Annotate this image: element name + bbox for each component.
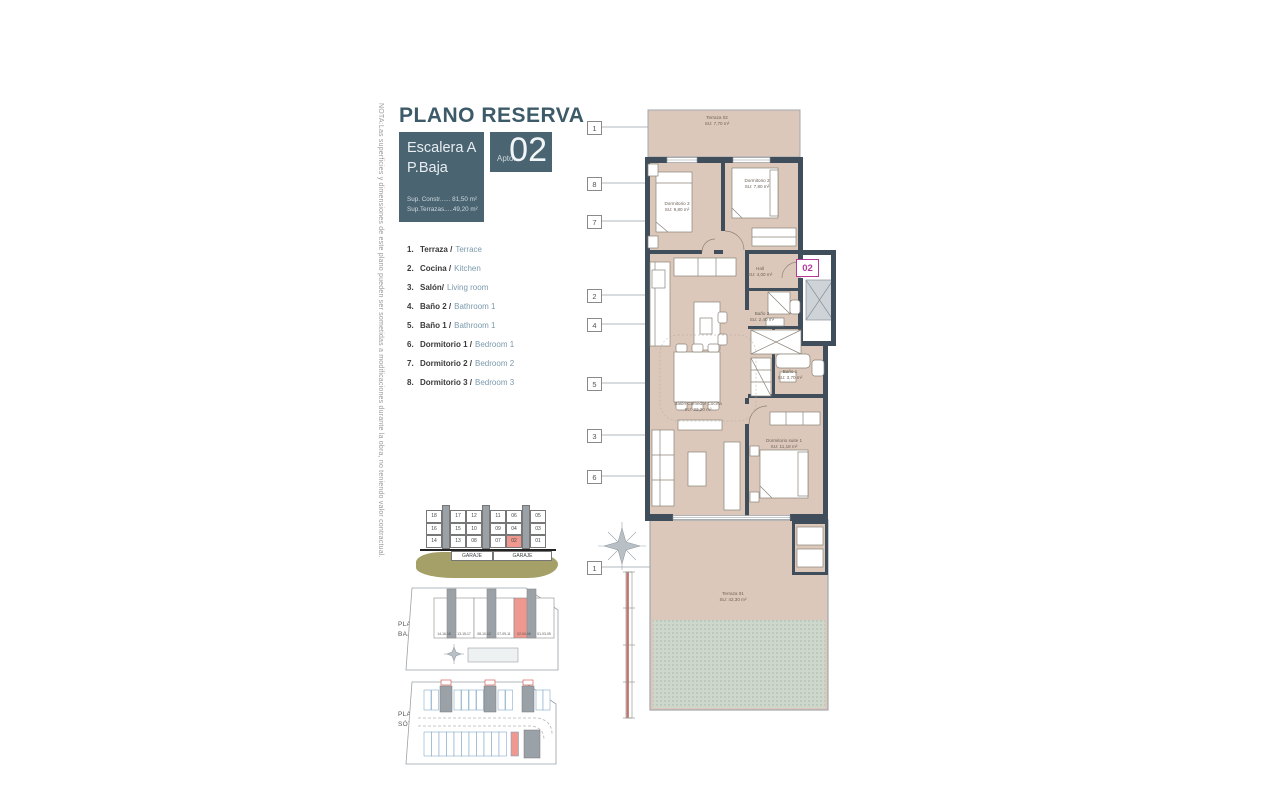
legend-item: 6.Dormitorio 1 /Bedroom 1 — [407, 341, 514, 349]
callout-7-dormitorio2: 7 — [587, 215, 602, 229]
legend-item: 3.Salón/Living room — [407, 284, 514, 292]
callout-6-dormitorio1: 6 — [587, 470, 602, 484]
callout-2-cocina: 2 — [587, 289, 602, 303]
compass-rose-icon — [598, 522, 646, 570]
room-label-bano1: Baño 1SU: 3,70 m² — [778, 369, 803, 381]
legend-item: 7.Dormitorio 2 /Bedroom 2 — [407, 360, 514, 368]
room-label-dormitorio2: Dormitorio 2SU: 7,80 m² — [744, 178, 769, 190]
building-elevation-scheme: 181614 171513 121008 110907 060402 05030… — [416, 502, 558, 580]
stair-core — [522, 505, 530, 549]
legend-item: 2.Cocina /Kitchen — [407, 265, 514, 273]
svg-text:02-04-06: 02-04-06 — [517, 632, 531, 636]
room-label-salon: Salón Comedor CocinaSU: 22,20 m² — [674, 401, 722, 413]
legend-item: 4.Baño 2 /Bathroom 1 — [407, 303, 514, 311]
room-label-bano2: Baño 2SU: 2,40 m² — [750, 311, 775, 323]
baja-blocks — [434, 589, 554, 638]
elevation-grid: 181614 171513 121008 110907 060402 05030… — [426, 505, 546, 549]
scale-bar — [623, 572, 635, 718]
sup-terrazas: Sup.Terrazas.....49,20 m² — [407, 205, 484, 214]
svg-text:08-10-12: 08-10-12 — [477, 632, 491, 636]
callout-3-salon: 3 — [587, 429, 602, 443]
svg-text:01-03-05: 01-03-05 — [537, 632, 551, 636]
svg-text:07-09-11: 07-09-11 — [497, 632, 510, 636]
apartment-02-badge: 02 — [796, 259, 819, 277]
garaje-label: GARAJE — [451, 551, 493, 561]
plano-reserva-document: NOTA:Las superficies y dimensiones de es… — [0, 0, 1280, 800]
callout-1-terraza-inferior: 1 — [587, 561, 602, 575]
planta-baja-siteplan: 14-16-18 13-15-17 08-10-12 07-09-11 02-0… — [396, 584, 562, 674]
callout-4-bano2: 4 — [587, 318, 602, 332]
legend-item: 1.Terraza /Terrace — [407, 246, 514, 254]
svg-text:14-16-18: 14-16-18 — [437, 632, 451, 636]
apto-number: 02 — [509, 131, 547, 170]
staircase-info-box: Escalera A P.Baja Sup. Constr...... 81,5… — [399, 132, 484, 222]
callout-8-dormitorio3: 8 — [587, 177, 602, 191]
garaje-label: GARAJE — [493, 551, 552, 561]
pool-shape — [468, 648, 518, 662]
callout-1-terraza: 1 — [587, 121, 602, 135]
sup-constr: Sup. Constr...... 81,50 m² — [407, 195, 484, 204]
room-label-terraza01: Terraza 01SU: 42,30 m² — [719, 591, 746, 603]
escalera-label: Escalera A — [407, 139, 484, 159]
room-label-suite: Dormitorio suite 1SU: 11,18 m² — [766, 438, 802, 450]
planta-sotano-siteplan — [396, 676, 562, 768]
room-legend: 1.Terraza /Terrace 2.Cocina /Kitchen 3.S… — [407, 246, 514, 398]
stair-core — [442, 505, 450, 549]
highlighted-unit-cell: 02 — [506, 535, 522, 548]
planta-label: P.Baja — [407, 159, 484, 179]
legend-item: 5.Baño 1 /Bathroom 1 — [407, 322, 514, 330]
stair-core — [482, 505, 490, 549]
callout-5-bano1: 5 — [587, 377, 602, 391]
svg-text:13-15-17: 13-15-17 — [457, 632, 471, 636]
page-title: PLANO RESERVA — [399, 104, 584, 128]
legend-item: 8.Dormitorio 3 /Bedroom 3 — [407, 379, 514, 387]
apartment-number-box: Apto. 02 — [490, 132, 552, 172]
room-label-dormitorio3: Dormitorio 3SU: 9,80 m² — [664, 201, 689, 213]
highlighted-parking-cell — [511, 732, 519, 756]
room-label-terraza02: Terraza 02SU: 7,70 m² — [705, 115, 730, 127]
disclaimer-note: NOTA:Las superficies y dimensiones de es… — [377, 103, 384, 703]
room-label-hall: HallSU: 4,00 m² — [748, 266, 773, 278]
